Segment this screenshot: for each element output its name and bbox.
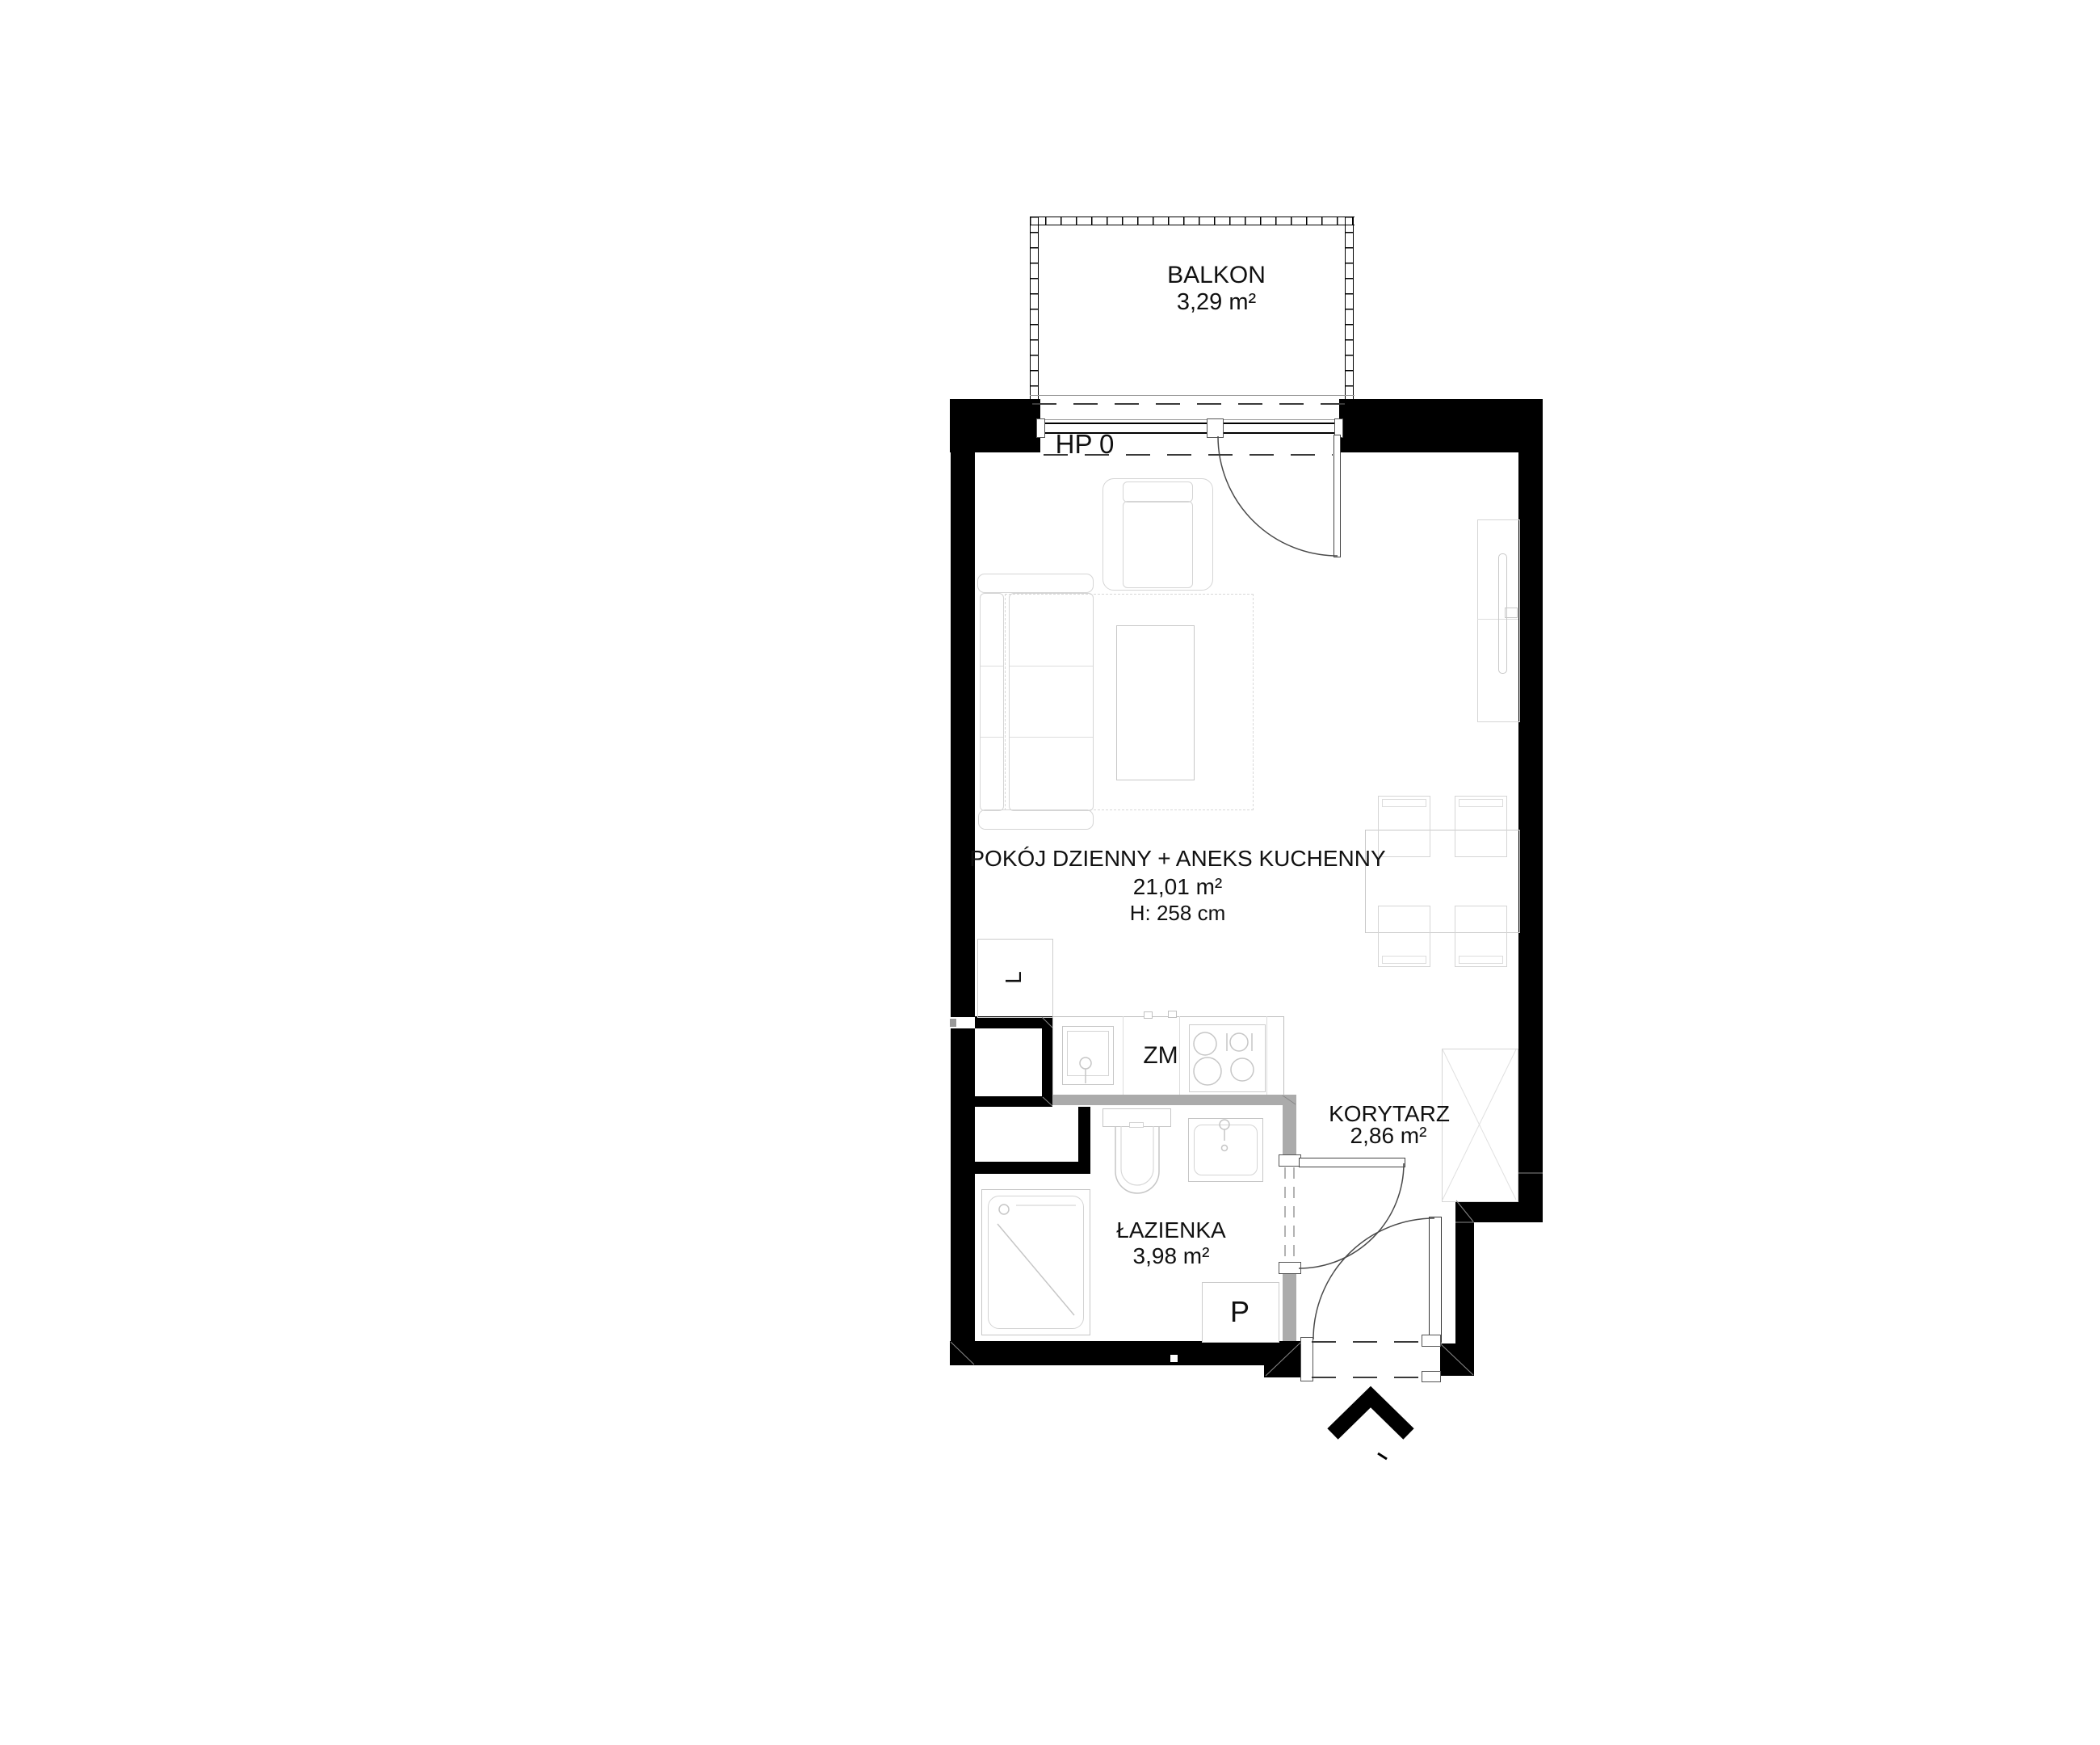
chair-backrest <box>1382 956 1426 964</box>
balcony-floor-edge <box>1030 395 1354 396</box>
dining-chair <box>1455 906 1507 967</box>
dishwasher-label: ZM <box>1143 1044 1178 1068</box>
wall-top-left <box>950 399 1040 452</box>
dining-chair <box>1455 796 1507 857</box>
bath-door-jamb-top <box>1279 1154 1301 1167</box>
entrance-door-arc <box>1313 1218 1434 1339</box>
shower-tray <box>988 1196 1084 1329</box>
balcony-railing-right <box>1345 217 1354 399</box>
entrance-door-leaf <box>1429 1217 1442 1343</box>
wall-right <box>1518 452 1543 1222</box>
bathroom-label: ŁAZIENKA <box>1116 1219 1225 1242</box>
counter-knob <box>1144 1011 1153 1019</box>
chair-backrest <box>1382 799 1426 807</box>
bath-door-arc <box>1299 1163 1404 1268</box>
living-room-label: POKÓJ DZIENNY + ANEKS KUCHENNY <box>969 847 1385 870</box>
window-unit-balcony-door <box>1222 423 1339 434</box>
bathroom-area: 3,98 m² <box>1133 1245 1210 1268</box>
entrance-jamb-left <box>1300 1337 1313 1381</box>
wall-entrance-block-right <box>1440 1343 1474 1376</box>
washing-machine-label: P <box>1230 1297 1249 1327</box>
balcony-door-arc <box>1218 436 1338 556</box>
kitchen-sink-bowl <box>1067 1031 1109 1076</box>
counter-knob <box>1168 1011 1177 1018</box>
wall-joint-mark <box>950 1019 956 1027</box>
sofa-seats <box>1009 593 1094 811</box>
dining-chair <box>1378 796 1430 857</box>
coffee-table <box>1116 625 1195 780</box>
sofa-back <box>980 593 1004 811</box>
sofa-armrest-top <box>977 574 1094 593</box>
toilet-bowl-inner <box>1121 1126 1153 1185</box>
living-room-height: H: 258 cm <box>1130 902 1226 923</box>
partition-bath-lower <box>1283 1273 1296 1341</box>
shaft-mid-band <box>951 1096 1052 1107</box>
wall-entrance-block-left <box>1264 1341 1302 1377</box>
floor-plan-page: { "labels": { "balcony_name": "BALKON", … <box>0 0 2100 1745</box>
sofa-back-seam <box>981 666 1003 666</box>
armchair-back-cushion <box>1123 481 1193 502</box>
shaft1-right-wall <box>1042 1016 1052 1107</box>
sofa-seat-seam <box>1010 666 1093 666</box>
counter-division <box>1179 1016 1180 1095</box>
entrance-arrow-tick <box>1378 1453 1387 1459</box>
wardrobe <box>1442 1049 1518 1202</box>
balcony-area: 3,29 m² <box>1177 291 1256 314</box>
window-outer-face-line <box>1040 419 1339 420</box>
dining-chair <box>1378 906 1430 967</box>
fridge-label: L <box>1002 971 1025 984</box>
counter-division <box>1266 1016 1267 1095</box>
partition-bath-upper <box>1283 1105 1296 1155</box>
tv-mount <box>1505 608 1518 618</box>
sofa-seat-seam <box>1010 737 1093 738</box>
plan-linework <box>0 0 2100 1745</box>
entrance-arrow-icon <box>1333 1397 1409 1434</box>
balcony-railing-left <box>1030 217 1039 399</box>
corridor-label: KORYTARZ <box>1329 1103 1450 1125</box>
bath-door-leaf <box>1299 1158 1405 1167</box>
balcony-label: BALKON <box>1167 263 1266 288</box>
wall-left <box>951 452 975 1341</box>
window-label: HP 0 <box>1056 431 1115 457</box>
wall-bottom <box>950 1341 1264 1365</box>
living-room-area: 21,01 m² <box>1133 876 1223 898</box>
partition-kitchen <box>1052 1095 1296 1105</box>
toilet-bowl <box>1115 1126 1159 1193</box>
sofa-armrest-bottom <box>978 809 1094 830</box>
sofa-back-seam <box>981 737 1003 738</box>
toilet-flush-button <box>1129 1122 1144 1128</box>
armchair-seat <box>1123 501 1193 588</box>
stove <box>1189 1024 1266 1092</box>
wall-corridor-right <box>1455 1200 1474 1343</box>
chair-backrest <box>1459 799 1503 807</box>
wall-top-right <box>1339 399 1543 452</box>
balcony-railing-top <box>1030 217 1354 225</box>
window-cap-left <box>1036 418 1045 438</box>
chair-backrest <box>1459 956 1503 964</box>
window-cap-middle <box>1207 418 1224 438</box>
balcony-door-leaf <box>1333 435 1341 557</box>
counter-division <box>1123 1016 1123 1095</box>
entrance-frame-top <box>1422 1335 1441 1347</box>
washbasin-bowl <box>1194 1125 1258 1175</box>
corridor-area: 2,86 m² <box>1350 1125 1427 1147</box>
floor-plan: BALKON 3,29 m² HP 0 POKÓJ DZIENNY + ANEK… <box>0 0 2100 1745</box>
shaft2-bottom-band <box>951 1162 1090 1174</box>
bath-door-jamb-bottom <box>1279 1262 1301 1274</box>
entrance-frame-bottom <box>1422 1371 1441 1382</box>
wall-notch <box>1170 1355 1178 1362</box>
